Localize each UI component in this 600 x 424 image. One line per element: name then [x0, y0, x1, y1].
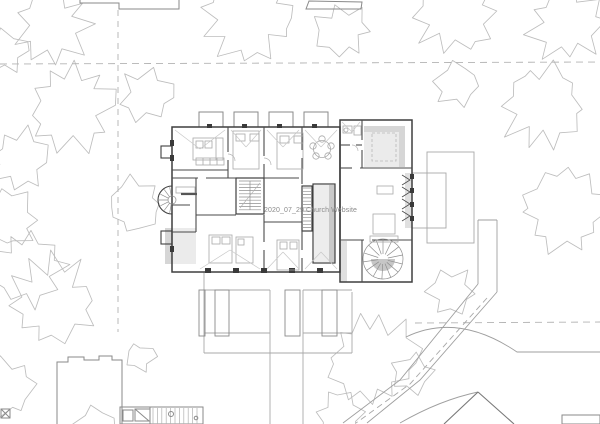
gray_fills-rect — [399, 126, 405, 167]
fixtures-rect — [277, 133, 303, 169]
fixtures-line — [267, 130, 283, 147]
fixtures-rect — [176, 187, 195, 193]
gray_fills-rect — [364, 126, 405, 167]
fixtures-circle — [314, 141, 331, 158]
roads-path — [400, 392, 478, 423]
walls_mid-rect — [205, 268, 211, 273]
walls_mid-rect — [317, 268, 323, 273]
roads-line — [478, 392, 514, 424]
site_light-rect — [285, 290, 300, 336]
fixtures-circle — [344, 128, 348, 132]
fixtures-path — [352, 145, 358, 151]
walls_mid-rect — [410, 216, 414, 221]
walls_mid-rect — [207, 124, 212, 128]
walls_mid-rect — [261, 268, 267, 273]
walls_mid-rect — [410, 174, 414, 179]
roads-path — [367, 292, 497, 423]
fixtures-line — [200, 250, 230, 269]
gray_fills-rect — [329, 185, 335, 262]
fixtures-circle — [310, 143, 316, 149]
site_light-rect — [427, 152, 474, 243]
fixtures-rect — [377, 186, 393, 194]
structures-rect — [123, 410, 133, 421]
fixtures-rect — [354, 126, 361, 135]
layer-gray_fills — [165, 126, 412, 282]
walls_mid-rect — [170, 140, 174, 146]
site_light-rect — [322, 290, 337, 336]
watermark-label: 2020_07_29 Church Website — [264, 207, 357, 214]
fixtures-circle — [319, 136, 325, 142]
layer-site_light — [199, 152, 474, 424]
fixtures-line — [283, 130, 299, 147]
structures-line — [135, 409, 149, 421]
fixtures-circle — [328, 143, 334, 149]
fixtures-rect — [212, 237, 220, 244]
walls_mid-rect — [312, 124, 317, 128]
roads-line — [444, 392, 478, 424]
gray_fills-rect — [314, 185, 329, 262]
fixtures-line — [283, 252, 299, 269]
fixtures-rect — [280, 242, 287, 249]
fixtures-rect — [373, 214, 395, 234]
fixtures-line — [200, 130, 225, 149]
fixtures-rect — [238, 239, 244, 245]
fixtures-line — [352, 122, 360, 132]
fixtures-line — [230, 250, 260, 269]
fixtures-circle — [313, 153, 319, 159]
roads-path — [406, 327, 600, 352]
fixtures-line — [267, 252, 283, 269]
walls_mid-rect — [410, 188, 414, 193]
walls_mid-rect — [170, 155, 174, 161]
roads-path — [356, 298, 487, 423]
walls_mid-rect — [277, 124, 282, 128]
walls_mid-rect — [242, 124, 247, 128]
walls_mid-rect — [410, 202, 414, 207]
layer-dormers — [199, 112, 328, 127]
roads-path — [343, 284, 478, 423]
site-plan: 2020_07_29 Church Website — [0, 0, 600, 424]
fixtures-circle — [325, 153, 331, 159]
site_light-rect — [412, 173, 446, 228]
fixtures-line — [175, 130, 200, 149]
fixtures-rect — [290, 242, 297, 249]
structures-path — [80, 0, 179, 9]
structures-circle — [169, 412, 174, 417]
walls_mid-rect — [233, 268, 239, 273]
gray_fills-rect — [364, 126, 405, 132]
fixtures-line — [342, 122, 352, 132]
walls_mid-rect — [170, 246, 174, 252]
gray_fills-rect — [341, 241, 347, 282]
dashed-line — [0, 62, 600, 64]
fixtures-path — [264, 158, 271, 165]
walls_mid-rect — [289, 268, 295, 273]
structures-path — [57, 356, 122, 424]
site_light-rect — [215, 290, 229, 336]
structures-rect — [562, 415, 600, 424]
fixtures-path — [228, 154, 235, 161]
fixtures-rect — [209, 235, 232, 263]
structures-hatch — [153, 408, 197, 424]
layer-dashed — [0, 10, 600, 332]
dashed-line — [415, 322, 600, 323]
fixtures-rect — [222, 237, 230, 244]
